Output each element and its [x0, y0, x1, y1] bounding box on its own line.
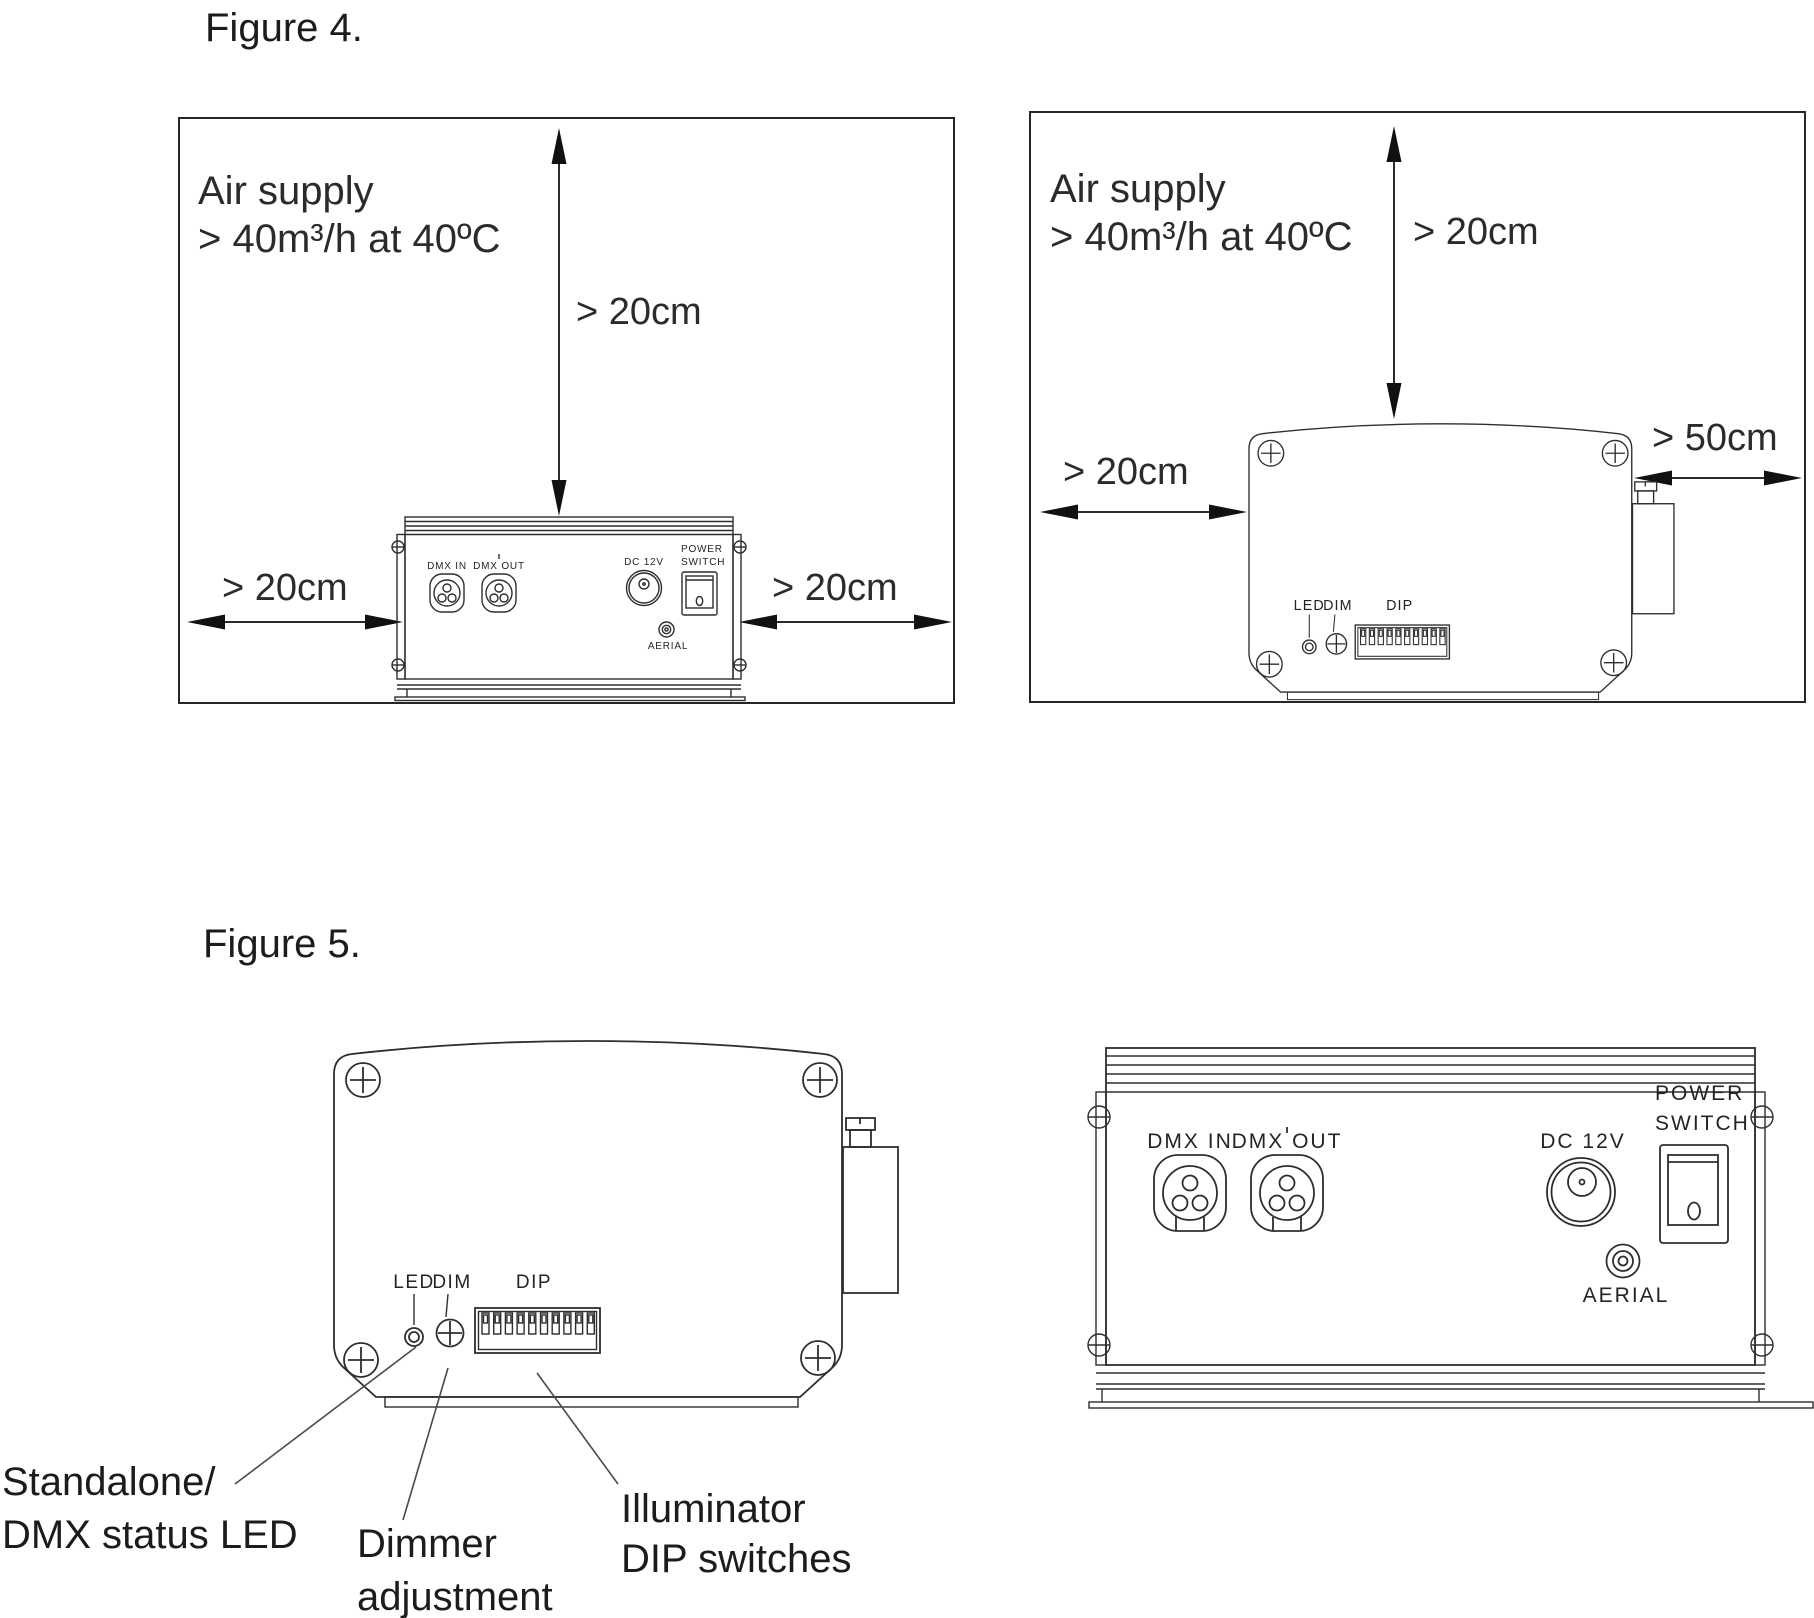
callout-dip-switches: Illuminator DIP switches [621, 1484, 851, 1584]
led-label: LED [1294, 598, 1325, 614]
right-clearance-label: > 20cm [772, 567, 898, 610]
illuminator-back-view-small: LED DIM DIP [1249, 423, 1686, 702]
left-clearance-label: > 20cm [1063, 451, 1189, 494]
callout-status-led: Standalone/ DMX status LED [2, 1456, 298, 1562]
aerial-label: AERIAL [648, 641, 688, 652]
dmx-in-label: DMX IN [427, 561, 467, 572]
figure5-title: Figure 5. [203, 922, 361, 967]
air-supply-note: Air supply > 40m³/h at 40ºC [1050, 165, 1353, 261]
dmx-out-label: DMX OUT [473, 561, 525, 572]
power-switch-label-line1: POWER [681, 544, 723, 555]
illuminator-front-view-large: DMX IN DMX OUT DC 12V POWER SWITCH AERIA… [1088, 1045, 1814, 1415]
top-clearance-label: > 20cm [1413, 211, 1539, 254]
dim-label: DIM [432, 1272, 471, 1293]
dim-label: DIM [1323, 598, 1353, 614]
figure4-title: Figure 4. [205, 6, 363, 51]
top-clearance-arrow [547, 128, 571, 516]
led-label: LED [393, 1272, 434, 1293]
top-clearance-label: > 20cm [576, 291, 702, 334]
figure4-left-clearance-diagram: Air supply > 40m³/h at 40ºC > 20cm > 20c… [178, 117, 955, 704]
power-switch-label-line1: POWER [1655, 1082, 1744, 1105]
manual-diagram-page: Figure 4. Air supply > 40m³/h at 40ºC > … [0, 0, 1814, 1618]
air-supply-note: Air supply > 40m³/h at 40ºC [198, 167, 501, 263]
callout-dimmer: Dimmer adjustment [357, 1518, 553, 1618]
left-clearance-arrow [187, 610, 403, 634]
left-clearance-label: > 20cm [222, 567, 348, 610]
dmx-in-label: DMX IN [1147, 1130, 1233, 1153]
dip-leader-line [537, 1373, 618, 1484]
dimmer-leader-line [403, 1368, 448, 1520]
dip-label: DIP [1386, 598, 1413, 614]
figure4-right-clearance-diagram: Air supply > 40m³/h at 40ºC > 20cm > 20c… [1029, 111, 1806, 703]
power-switch-label-line2: SWITCH [681, 557, 725, 568]
dmx-out-label: DMX OUT [1232, 1130, 1343, 1153]
dip-label: DIP [516, 1272, 552, 1293]
dc-12v-label: DC 12V [624, 557, 664, 568]
left-clearance-arrow [1040, 500, 1247, 524]
dc-12v-label: DC 12V [1540, 1130, 1626, 1153]
top-clearance-arrow [1382, 126, 1406, 419]
right-clearance-arrow [739, 610, 952, 634]
power-switch-label-line2: SWITCH [1655, 1112, 1750, 1135]
illuminator-front-view-small: DMX IN DMX OUT DC 12V POWER SWITCH AERIA… [395, 515, 745, 701]
aerial-label: AERIAL [1583, 1284, 1670, 1307]
